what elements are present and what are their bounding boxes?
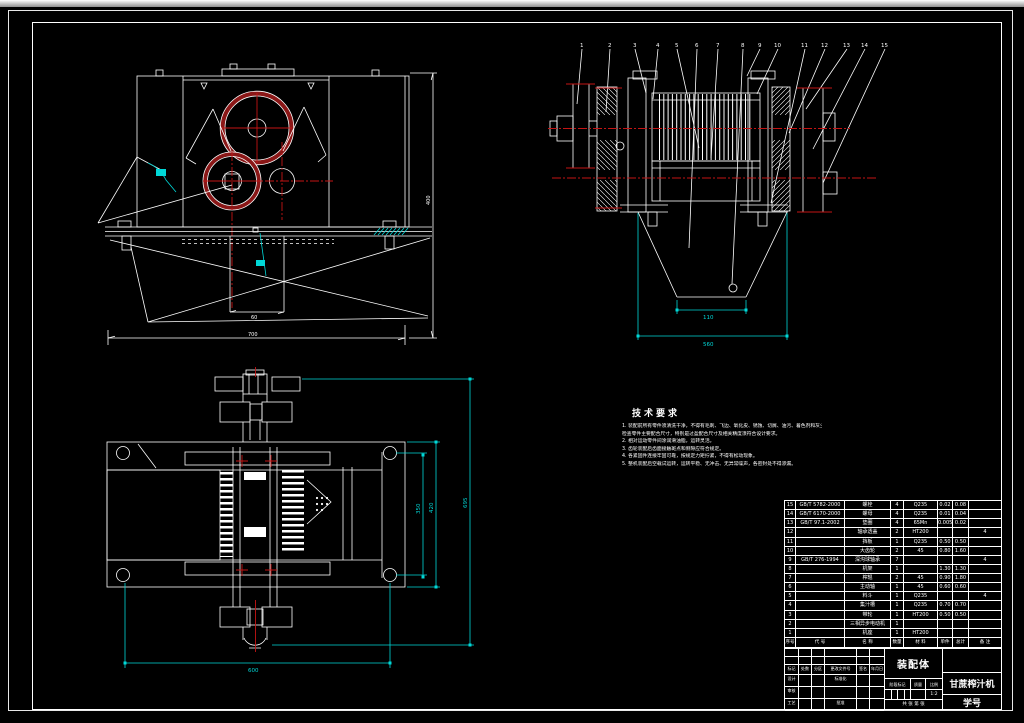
cell-code [796, 565, 845, 573]
table-row: 3 带轮 1 HT200 0.50 0.50 [785, 611, 1001, 620]
cell-code [796, 611, 845, 619]
company-cell [943, 649, 1001, 673]
cell-remark [969, 519, 1001, 527]
table-row: 15 GB/T 5782-2000 螺栓 4 Q235 0.02 0.08 [785, 501, 1001, 510]
cell-remark [969, 601, 1001, 609]
dim-front-height: 400 [426, 195, 432, 205]
cell-remark: 4 [969, 528, 1001, 536]
cell-material: Q235 [904, 501, 938, 509]
cell-material: Q235 [904, 601, 938, 609]
table-row: 6 主动轴 1 45 0.60 0.60 [785, 583, 1001, 592]
parts-list-header: 序号 代 号 名 称 数量 材 料 单件 总计 备 注 [785, 638, 1001, 647]
dim-front-width: 700 [248, 332, 258, 338]
cell-code: GB/T 5782-2000 [796, 501, 845, 509]
cell-total-weight: 0.02 [953, 519, 969, 527]
title-block-right: 甘蔗榨汁机 学号 [943, 649, 1001, 709]
cell-remark [969, 620, 1001, 628]
cell-material: 45 [904, 583, 938, 591]
technical-requirement-line: 3. 齿轮装配后齿面接触斑点和侧隙应符合规定。 [622, 446, 822, 454]
cell-unit-weight [938, 556, 953, 564]
header-remark: 备 注 [969, 638, 1001, 647]
cell-name: 三相异步电动机 [845, 620, 891, 628]
cell-no: 2 [785, 620, 796, 628]
label-approve: 批准 [825, 699, 857, 711]
label-design: 设计 [785, 675, 799, 687]
cell-qty: 7 [891, 556, 904, 564]
cell-code [796, 528, 845, 536]
parts-list-table: 15 GB/T 5782-2000 螺栓 4 Q235 0.02 0.08 14… [784, 500, 1002, 648]
cell-unit-weight: 0.02 [938, 501, 953, 509]
table-row: 14 GB/T 6170-2000 螺母 4 Q235 0.01 0.04 [785, 510, 1001, 519]
cell-code [796, 620, 845, 628]
technical-requirement-line: 4. 各紧固件连接牢固可靠，按规定力矩拧紧，不得有松动现象。 [622, 453, 822, 461]
cell-unit-weight: 0.50 [938, 538, 953, 546]
cell-remark [969, 501, 1001, 509]
svg-text:3: 3 [633, 43, 637, 49]
cell-code: GB/T 97.1-2002 [796, 519, 845, 527]
cell-material: HT200 [904, 611, 938, 619]
table-row: 1 机座 1 HT200 [785, 629, 1001, 638]
cell-qty: 1 [891, 629, 904, 637]
cell-total-weight: 1.80 [953, 574, 969, 582]
cell-unit-weight [938, 620, 953, 628]
cell-remark [969, 547, 1001, 555]
cell-unit-weight: 0.80 [938, 547, 953, 555]
cell-unit-weight [938, 629, 953, 637]
cell-no: 15 [785, 501, 796, 509]
cell-no: 3 [785, 611, 796, 619]
svg-text:14: 14 [861, 43, 868, 49]
svg-text:8: 8 [741, 43, 745, 49]
header-name: 名 称 [845, 638, 891, 647]
cell-total-weight: 1.60 [953, 547, 969, 555]
cell-remark [969, 574, 1001, 582]
cell-unit-weight: 0.005 [938, 519, 953, 527]
cell-qty: 1 [891, 620, 904, 628]
cell-no: 13 [785, 519, 796, 527]
parts-list-rows: 15 GB/T 5782-2000 螺栓 4 Q235 0.02 0.08 14… [785, 501, 1001, 638]
cell-remark: 4 [969, 556, 1001, 564]
label-date: 年月日 [870, 665, 884, 675]
svg-text:13: 13 [843, 43, 850, 49]
cell-no: 11 [785, 538, 796, 546]
cell-code [796, 592, 845, 600]
cell-no: 1 [785, 629, 796, 637]
cell-material: Q235 [904, 510, 938, 518]
cell-material: HT200 [904, 528, 938, 536]
cell-unit-weight: 0.60 [938, 583, 953, 591]
table-row: 12 轴承透盖 2 HT200 4 [785, 528, 1001, 537]
dim-side-outer: 560 [703, 342, 714, 348]
cell-unit-weight: 0.70 [938, 601, 953, 609]
cell-code [796, 538, 845, 546]
technical-requirement-line: 检查零件主要配合尺寸，特别是过盈配合尺寸及相关精度须符合设计要求。 [622, 431, 822, 439]
dim-sec-bottom: 600 [248, 668, 259, 674]
cell-name: 螺母 [845, 510, 891, 518]
drawing-title: 装配体 [885, 649, 942, 679]
dim-front-chute: 60 [251, 315, 257, 321]
label-count: 处数 [799, 665, 812, 675]
dim-sec-h2: 420 [429, 502, 435, 513]
cell-name: 轴承透盖 [845, 528, 891, 536]
cell-name: 榨辊 [845, 574, 891, 582]
cell-code [796, 583, 845, 591]
svg-text:12: 12 [821, 43, 828, 49]
table-row: 4 集汁槽 1 Q235 0.70 0.70 [785, 601, 1001, 610]
table-row: 10 大齿轮 2 45 0.80 1.60 [785, 547, 1001, 556]
header-no: 序号 [785, 638, 796, 647]
title-block-signatures: 标记 处数 分区 更改文件号 签名 年月日 设计 标准化 审核 工艺 批准 [785, 649, 885, 709]
cell-total-weight: 0.60 [953, 583, 969, 591]
cell-total-weight: 0.08 [953, 501, 969, 509]
label-review: 审核 [785, 687, 799, 699]
cell-qty: 2 [891, 574, 904, 582]
product-name: 甘蔗榨汁机 [943, 673, 1001, 695]
label-mass: 质量 [911, 679, 926, 689]
cell-qty: 1 [891, 592, 904, 600]
cell-material [904, 565, 938, 573]
cell-total-weight: 0.04 [953, 510, 969, 518]
label-zone: 分区 [812, 665, 825, 675]
svg-text:15: 15 [881, 43, 888, 49]
cell-code [796, 547, 845, 555]
cell-total-weight [953, 556, 969, 564]
svg-text:5: 5 [675, 43, 679, 49]
cell-no: 9 [785, 556, 796, 564]
cell-material [904, 620, 938, 628]
dim-side-inner: 110 [703, 315, 714, 321]
sheet-count: 共 张 第 张 [885, 700, 942, 709]
cell-remark [969, 565, 1001, 573]
cell-total-weight: 1.30 [953, 565, 969, 573]
cell-qty: 4 [891, 519, 904, 527]
cell-qty: 2 [891, 528, 904, 536]
dim-sec-h3: 695 [463, 497, 469, 508]
cell-total-weight [953, 528, 969, 536]
technical-requirements: 技术要求 1. 装配前所有零件须清洗干净，不得有毛刺、飞边、氧化皮、锈蚀、切屑、… [622, 406, 822, 469]
label-stage-mark: 阶段标记 [885, 679, 911, 689]
cell-code [796, 629, 845, 637]
technical-requirement-line: 1. 装配前所有零件须清洗干净，不得有毛刺、飞边、氧化皮、锈蚀、切屑、油污、着色… [622, 423, 822, 431]
cell-material: 45 [904, 574, 938, 582]
cell-no: 10 [785, 547, 796, 555]
dim-sec-h1: 350 [416, 503, 422, 514]
cell-unit-weight: 1.30 [938, 565, 953, 573]
cell-remark [969, 510, 1001, 518]
table-row: 8 机架 1 1.30 1.30 [785, 565, 1001, 574]
svg-text:11: 11 [801, 43, 808, 49]
label-scale: 比例 [926, 679, 942, 689]
front-view: 60 700 400 [98, 64, 437, 345]
cell-name: 主动轴 [845, 583, 891, 591]
technical-requirement-line: 5. 整机装配后空载试运转，运转平稳、无冲击、无异常噪声，各密封处不得渗漏。 [622, 461, 822, 469]
svg-text:2: 2 [608, 43, 612, 49]
cell-name: 集汁槽 [845, 601, 891, 609]
table-row: 13 GB/T 97.1-2002 垫圈 4 65Mn 0.005 0.02 [785, 519, 1001, 528]
cell-remark: 4 [969, 592, 1001, 600]
label-process: 工艺 [785, 699, 799, 711]
cell-material: Q235 [904, 538, 938, 546]
cell-no: 7 [785, 574, 796, 582]
cell-material: Q235 [904, 592, 938, 600]
cell-code [796, 601, 845, 609]
cell-name: 机架 [845, 565, 891, 573]
table-row: 2 三相异步电动机 1 [785, 620, 1001, 629]
cell-material: HT200 [904, 629, 938, 637]
cell-remark [969, 629, 1001, 637]
cell-qty: 4 [891, 501, 904, 509]
perforation-dots [316, 497, 328, 511]
cell-name: 料斗 [845, 592, 891, 600]
svg-text:9: 9 [758, 43, 762, 49]
cell-qty: 1 [891, 583, 904, 591]
cell-no: 6 [785, 583, 796, 591]
cell-qty: 1 [891, 565, 904, 573]
cell-code: GB/T 6170-2000 [796, 510, 845, 518]
student-no: 学号 [943, 695, 1001, 709]
title-block-center: 装配体 阶段标记 质量 比例 1:2 共 张 第 张 [885, 649, 943, 709]
svg-text:7: 7 [716, 43, 720, 49]
cell-no: 4 [785, 601, 796, 609]
cell-total-weight: 0.50 [953, 611, 969, 619]
title-block: 标记 处数 分区 更改文件号 签名 年月日 设计 标准化 审核 工艺 批准 [784, 648, 1002, 710]
technical-requirements-title: 技术要求 [632, 406, 822, 419]
cell-name: 大齿轮 [845, 547, 891, 555]
cell-material: 65Mn [904, 519, 938, 527]
cell-no: 8 [785, 565, 796, 573]
section-view: 350 420 695 600 [107, 367, 474, 674]
svg-text:10: 10 [774, 43, 781, 49]
svg-text:1: 1 [580, 43, 584, 49]
cell-total-weight [953, 592, 969, 600]
cell-qty: 1 [891, 538, 904, 546]
balloon-leader-lines [577, 49, 885, 284]
cell-material: 45 [904, 547, 938, 555]
technical-requirements-lines: 1. 装配前所有零件须清洗干净，不得有毛刺、飞边、氧化皮、锈蚀、切屑、油污、着色… [622, 423, 822, 469]
cell-name: 螺栓 [845, 501, 891, 509]
table-row: 11 挡板 1 Q235 0.50 0.50 [785, 538, 1001, 547]
header-material: 材 料 [904, 638, 938, 647]
cell-qty: 1 [891, 601, 904, 609]
cell-qty: 4 [891, 510, 904, 518]
balloon-numbers: 1 2 3 4 5 6 7 8 9 10 11 12 13 14 15 [580, 43, 888, 49]
cell-total-weight [953, 629, 969, 637]
cell-name: 深沟球轴承 [845, 556, 891, 564]
cell-unit-weight: 0.50 [938, 611, 953, 619]
cell-name: 挡板 [845, 538, 891, 546]
cell-qty: 2 [891, 547, 904, 555]
svg-text:4: 4 [656, 43, 660, 49]
cell-name: 机座 [845, 629, 891, 637]
cell-code: GB/T 276-1994 [796, 556, 845, 564]
header-unit-weight: 单件 [938, 638, 953, 647]
cell-unit-weight: 0.90 [938, 574, 953, 582]
table-row: 5 料斗 1 Q235 4 [785, 592, 1001, 601]
cad-drawing-page: 60 700 400 [0, 0, 1024, 723]
label-sign: 签名 [857, 665, 870, 675]
cell-name: 垫圈 [845, 519, 891, 527]
svg-text:6: 6 [695, 43, 699, 49]
cell-remark [969, 611, 1001, 619]
cell-total-weight: 0.50 [953, 538, 969, 546]
cell-unit-weight: 0.01 [938, 510, 953, 518]
header-total-weight: 总计 [953, 638, 969, 647]
cell-no: 12 [785, 528, 796, 536]
label-doc-no: 更改文件号 [825, 665, 857, 675]
header-qty: 数量 [891, 638, 904, 647]
cell-no: 5 [785, 592, 796, 600]
cell-unit-weight [938, 528, 953, 536]
scale-value: 1:2 [926, 690, 942, 699]
cell-qty: 1 [891, 611, 904, 619]
label-standardization: 标准化 [825, 675, 857, 687]
cell-total-weight: 0.70 [953, 601, 969, 609]
header-code: 代 号 [796, 638, 845, 647]
cell-name: 带轮 [845, 611, 891, 619]
cell-remark [969, 583, 1001, 591]
cell-material [904, 556, 938, 564]
cell-remark [969, 538, 1001, 546]
technical-requirement-line: 2. 相对运动零件间涂润滑油脂，运转灵活。 [622, 438, 822, 446]
cell-total-weight [953, 620, 969, 628]
cell-code [796, 574, 845, 582]
label-mark: 标记 [785, 665, 799, 675]
table-row: 7 榨辊 2 45 0.90 1.80 [785, 574, 1001, 583]
cell-no: 14 [785, 510, 796, 518]
side-view: 110 560 [548, 49, 885, 348]
table-row: 9 GB/T 276-1994 深沟球轴承 7 4 [785, 556, 1001, 565]
cell-unit-weight [938, 592, 953, 600]
